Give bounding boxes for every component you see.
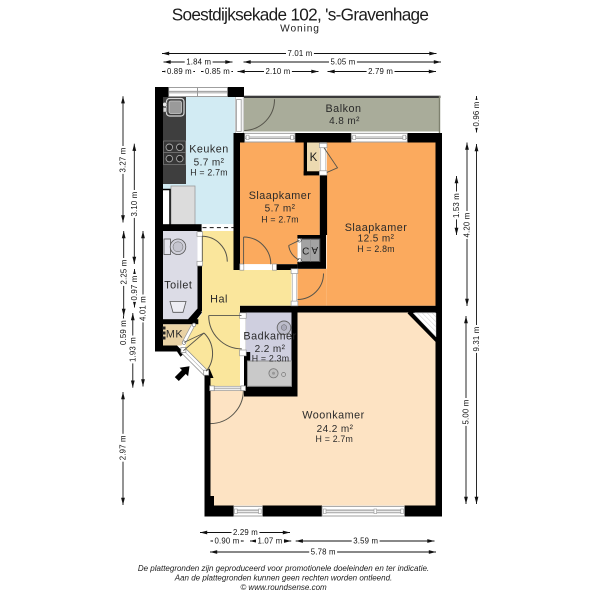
svg-text:Woonkamer: Woonkamer [302, 410, 365, 422]
svg-text:5.78 m: 5.78 m [311, 548, 336, 557]
svg-text:Woning: Woning [280, 24, 320, 35]
svg-text:4.8 m²: 4.8 m² [329, 116, 360, 127]
svg-text:MK: MK [166, 328, 183, 340]
svg-text:H = 2.7m: H = 2.7m [316, 434, 354, 444]
svg-text:4.01 m: 4.01 m [139, 296, 148, 321]
svg-text:H = 2.7m: H = 2.7m [261, 215, 299, 225]
svg-text:Slaapkamer: Slaapkamer [345, 222, 408, 234]
svg-text:H = 2.8m: H = 2.8m [357, 244, 395, 254]
svg-text:Aan de plattegronden kunnen ge: Aan de plattegronden kunnen geen rechten… [174, 574, 393, 583]
svg-text:2.97 m: 2.97 m [119, 435, 128, 460]
svg-text:3.59 m: 3.59 m [353, 537, 378, 546]
svg-text:H = 2.7m: H = 2.7m [190, 167, 228, 177]
svg-text:3.10 m: 3.10 m [130, 192, 139, 217]
svg-text:© www.roundsense.com: © www.roundsense.com [240, 583, 327, 592]
svg-text:Hal: Hal [210, 293, 228, 305]
svg-text:0.85 m: 0.85 m [205, 67, 230, 76]
svg-text:C: C [302, 246, 309, 257]
svg-text:7.01 m: 7.01 m [288, 49, 313, 58]
svg-text:2.10 m: 2.10 m [266, 67, 291, 76]
svg-text:2.79 m: 2.79 m [368, 67, 393, 76]
svg-text:Balkon: Balkon [325, 103, 361, 115]
svg-text:0.59 m: 0.59 m [119, 320, 128, 345]
svg-text:0.90 m: 0.90 m [215, 537, 240, 546]
svg-text:2.25 m: 2.25 m [119, 260, 128, 285]
svg-text:Slaapkamer: Slaapkamer [249, 190, 312, 202]
svg-text:Badkamer: Badkamer [243, 331, 296, 343]
svg-text:1.53 m: 1.53 m [452, 193, 461, 218]
svg-text:1.07 m: 1.07 m [258, 537, 283, 546]
svg-text:5.7 m²: 5.7 m² [265, 204, 296, 215]
svg-text:4.20 m: 4.20 m [463, 213, 472, 238]
svg-text:3.27 m: 3.27 m [119, 148, 128, 173]
svg-text:5.05 m: 5.05 m [331, 58, 356, 67]
svg-text:1.84 m: 1.84 m [186, 58, 211, 67]
svg-text:H = 2.3m: H = 2.3m [252, 354, 290, 364]
svg-text:Keuken: Keuken [189, 144, 229, 156]
svg-text:A: A [311, 244, 318, 255]
svg-text:5.00 m: 5.00 m [462, 400, 471, 425]
svg-text:0.89 m: 0.89 m [167, 67, 192, 76]
svg-text:0.96 m: 0.96 m [472, 102, 481, 127]
svg-text:De plattegronden zijn geproduc: De plattegronden zijn geproduceerd voor … [138, 564, 429, 573]
svg-text:9.31 m: 9.31 m [472, 327, 481, 352]
svg-text:12.5 m²: 12.5 m² [358, 234, 395, 245]
svg-text:1.93 m: 1.93 m [129, 337, 138, 362]
svg-text:Toilet: Toilet [164, 279, 192, 291]
svg-text:K: K [310, 152, 318, 164]
svg-text:Soestdijksekade 102, 's-Graven: Soestdijksekade 102, 's-Gravenhage [172, 5, 429, 25]
